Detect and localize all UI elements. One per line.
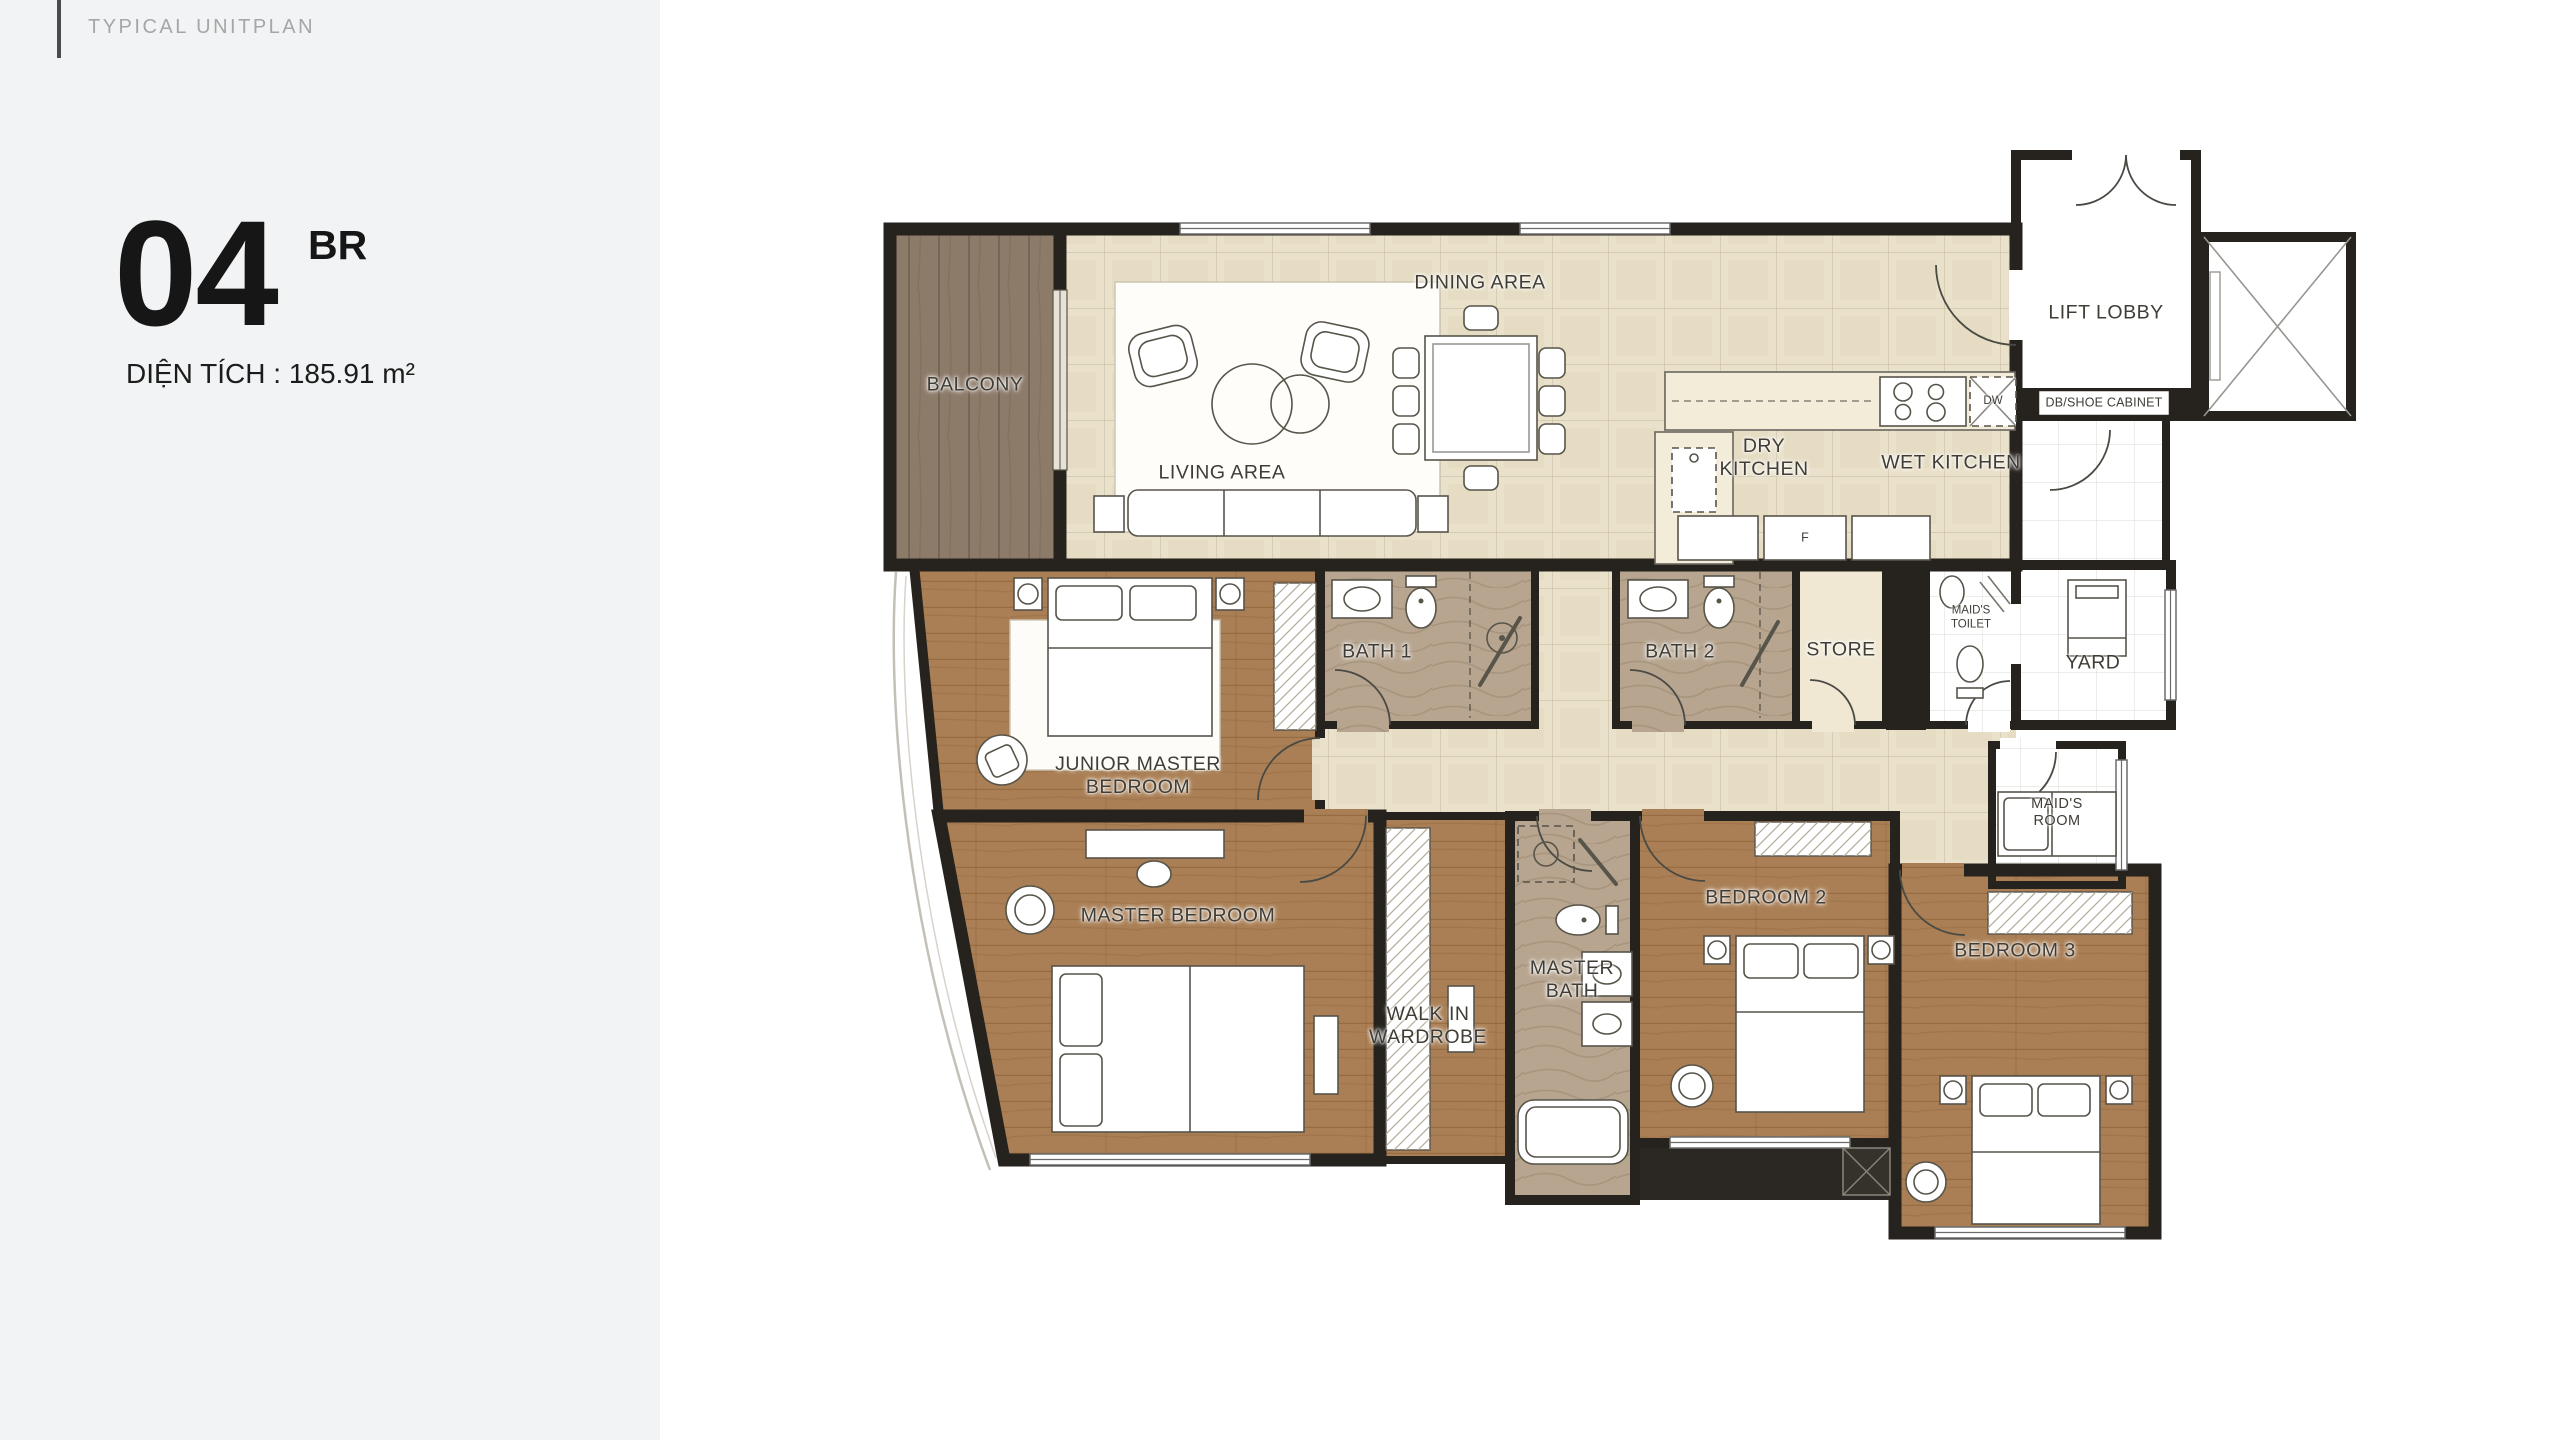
vanity-sink (1582, 1002, 1632, 1046)
lift-door (2210, 272, 2220, 380)
armchair (1671, 1065, 1713, 1107)
dining-chair (1539, 348, 1565, 378)
room-label-wet-kitchen: WET KITCHEN (1881, 452, 2020, 475)
pillow (1130, 586, 1196, 620)
kitchen-sink (1672, 448, 1716, 512)
desk-chair (1137, 861, 1171, 887)
bench (1314, 1016, 1338, 1094)
sink (1940, 576, 1964, 608)
page-title: TYPICAL UNITPLAN (88, 16, 315, 39)
room-label-bedroom2: BEDROOM 2 (1705, 887, 1827, 910)
toilet (1406, 588, 1436, 628)
room-label-yard: YARD (2066, 652, 2121, 675)
desk (1086, 830, 1224, 858)
dining-chair (1464, 466, 1498, 490)
pillow (1804, 944, 1858, 978)
side-table (1094, 496, 1124, 532)
bathtub (1518, 1100, 1628, 1164)
room-label-bedroom3: BEDROOM 3 (1954, 940, 2076, 963)
label-db-shoe-cabinet: DB/SHOE CABINET (2046, 396, 2163, 411)
side-table (1418, 496, 1448, 532)
room-balcony (890, 229, 1060, 565)
vanity-sink (1332, 580, 1392, 618)
pillow (1060, 974, 1102, 1046)
sofa (1128, 490, 1416, 536)
room-label-maids-toilet: MAID'S TOILET (1931, 604, 2011, 631)
floor-plan: BALCONY LIVING AREA DINING AREA DRY KITC… (880, 140, 2380, 1270)
room-label-store: STORE (1806, 639, 1875, 662)
pillow (1980, 1084, 2032, 1116)
dining-chair (1393, 348, 1419, 378)
hob (1880, 377, 1966, 426)
unit-number: 04 (114, 198, 277, 348)
toilet-tank (1704, 576, 1734, 587)
toilet-tank (1406, 576, 1436, 587)
pillow (1060, 1054, 1102, 1126)
pillow (1744, 944, 1798, 978)
service-corridor (2016, 416, 2166, 565)
armchair (977, 735, 1027, 785)
room-label-balcony: BALCONY (920, 374, 1030, 397)
toilet (1556, 905, 1600, 935)
unit-area: DIỆN TÍCH : 185.91 m² (126, 358, 415, 390)
armchair (1006, 886, 1054, 934)
header-accent-bar (57, 0, 61, 58)
ac-ledge-detail (1843, 1148, 1890, 1195)
room-label-maids-room: MAID'S ROOM (2010, 796, 2105, 830)
pillow (1056, 586, 1122, 620)
room-label-bath1: BATH 1 (1342, 641, 1412, 664)
room-label-bath2: BATH 2 (1645, 641, 1715, 664)
room-label-dry-kitchen: DRY KITCHEN (1714, 435, 1814, 481)
room-label-living: LIVING AREA (1159, 462, 1286, 485)
vanity-sink (1628, 580, 1688, 618)
dining-chair (1393, 424, 1419, 454)
toilet-tank (1606, 906, 1618, 934)
yard-fixtures (2068, 580, 2126, 656)
dining-table (1425, 336, 1537, 460)
room-label-master-bath: MASTER BATH (1517, 957, 1627, 1003)
room-label-walk-in-wardrobe: WALK IN WARDROBE (1358, 1003, 1498, 1049)
pillow (2038, 1084, 2090, 1116)
dining-chair (1539, 424, 1565, 454)
dining-chair (1464, 306, 1498, 330)
label-dishwasher: DW (1983, 395, 2002, 409)
dining-chair (1393, 386, 1419, 416)
wall-mass (1886, 560, 1926, 730)
dining-chair (1539, 386, 1565, 416)
room-label-junior-master-bedroom: JUNIOR MASTER BEDROOM (1033, 753, 1243, 799)
toilet-tank (1957, 688, 1983, 698)
sidebar: TYPICAL UNITPLAN 04 BR DIỆN TÍCH : 185.9… (0, 0, 660, 1440)
kitchen-cabinet (1852, 516, 1930, 560)
room-label-master-bedroom: MASTER BEDROOM (1081, 905, 1275, 928)
label-fridge: F (1801, 531, 1809, 546)
toilet (1957, 646, 1983, 682)
unit-type-suffix: BR (308, 222, 367, 269)
toilet (1704, 588, 1734, 628)
armchair (1906, 1162, 1946, 1202)
kitchen-cabinet (1678, 516, 1758, 560)
room-label-dining: DINING AREA (1414, 272, 1545, 295)
room-label-lift-lobby: LIFT LOBBY (2048, 302, 2163, 325)
